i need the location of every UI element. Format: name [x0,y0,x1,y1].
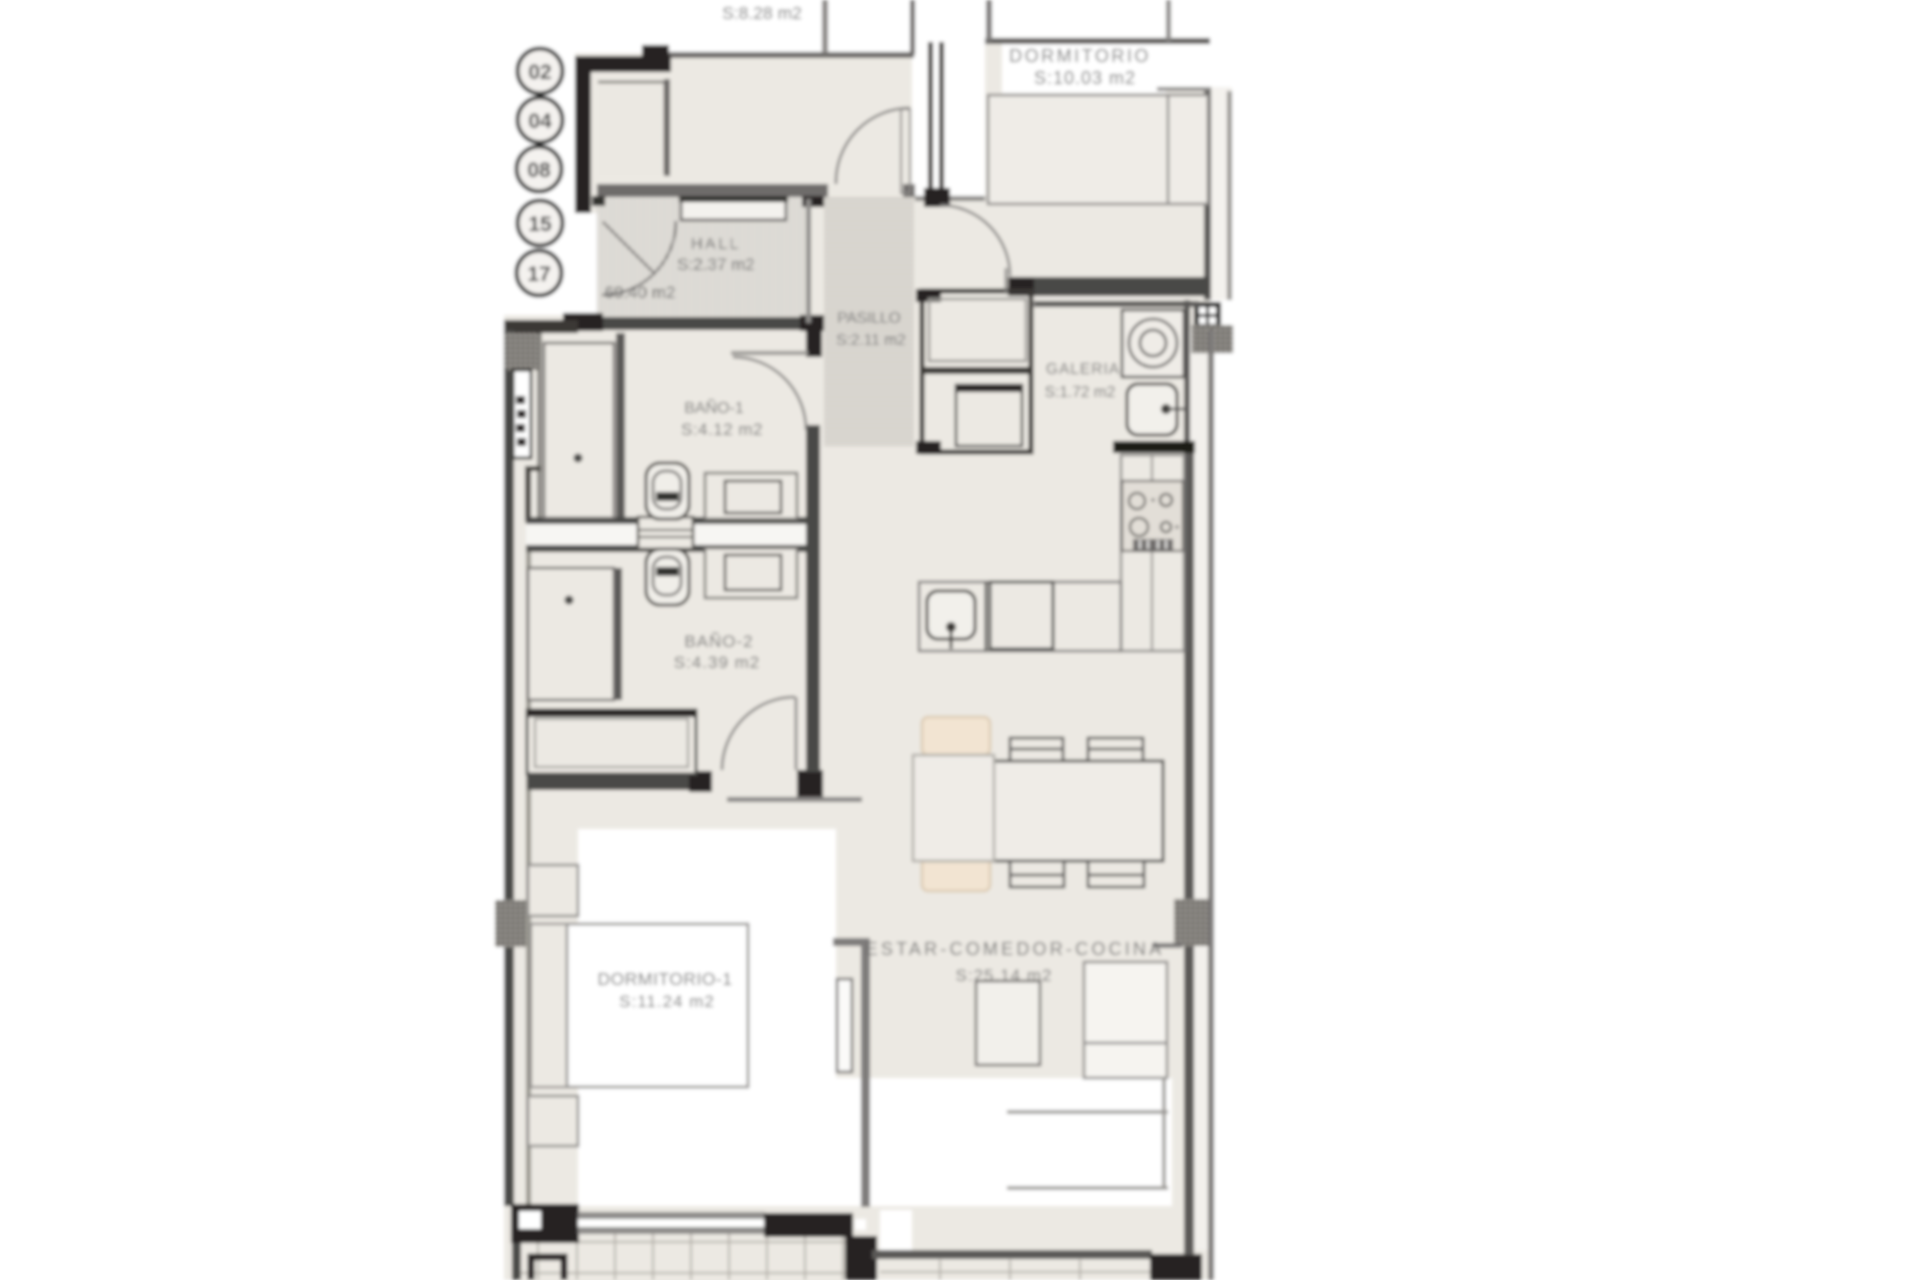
svg-text:S:4.39 m2: S:4.39 m2 [674,653,761,672]
svg-text:69.40 m2: 69.40 m2 [605,283,676,302]
svg-text:DORMITORIO-1: DORMITORIO-1 [598,969,733,989]
svg-text:04: 04 [528,110,552,133]
svg-text:S:11.24 m2: S:11.24 m2 [619,992,715,1011]
svg-text:GALERIA: GALERIA [1046,361,1120,378]
svg-text:S:2.37 m2: S:2.37 m2 [677,255,755,274]
svg-text:PASILLO: PASILLO [837,310,900,327]
svg-text:15: 15 [528,213,552,236]
svg-text:02: 02 [528,61,551,84]
svg-text:08: 08 [527,159,551,182]
svg-text:DORMITORIO: DORMITORIO [1009,46,1151,66]
svg-text:BAÑO-2: BAÑO-2 [684,632,753,651]
svg-text:S:1.72 m2: S:1.72 m2 [1045,384,1116,401]
svg-text:17: 17 [527,263,550,286]
svg-text:S:4.12 m2: S:4.12 m2 [681,420,763,439]
svg-text:S:10.03 m2: S:10.03 m2 [1034,68,1136,88]
svg-text:ESTAR-COMEDOR-COCINA: ESTAR-COMEDOR-COCINA [866,939,1165,959]
svg-text:S:8.28 m2: S:8.28 m2 [722,3,802,23]
svg-text:S:2.11 m2: S:2.11 m2 [836,332,906,349]
svg-text:BAÑO-1: BAÑO-1 [684,397,744,417]
svg-text:HALL: HALL [691,236,741,253]
